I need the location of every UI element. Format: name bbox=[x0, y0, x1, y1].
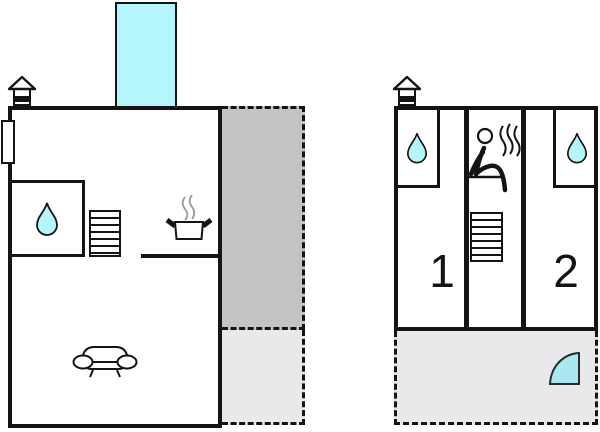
interior-wall bbox=[141, 254, 222, 258]
sauna-person-icon bbox=[466, 118, 522, 202]
terrace-open bbox=[222, 330, 305, 425]
main-house-outline bbox=[8, 106, 222, 428]
stairs-icon bbox=[470, 212, 503, 262]
room-label-1: 1 bbox=[420, 248, 464, 294]
floor-plan-canvas: 1 2 bbox=[0, 0, 600, 432]
water-drop-icon bbox=[566, 132, 588, 164]
stairs-icon bbox=[89, 210, 121, 257]
door-marker bbox=[1, 120, 15, 164]
room-label-2: 2 bbox=[544, 248, 588, 294]
water-drop-icon bbox=[35, 202, 59, 236]
sofa-icon bbox=[72, 334, 138, 378]
water-drop-icon bbox=[406, 132, 428, 164]
chimney-house-icon bbox=[7, 75, 37, 108]
cyan-extension bbox=[115, 2, 177, 108]
cooking-pot-icon bbox=[164, 193, 212, 243]
terrace-covered bbox=[222, 106, 305, 330]
chimney-house-icon bbox=[392, 75, 422, 108]
